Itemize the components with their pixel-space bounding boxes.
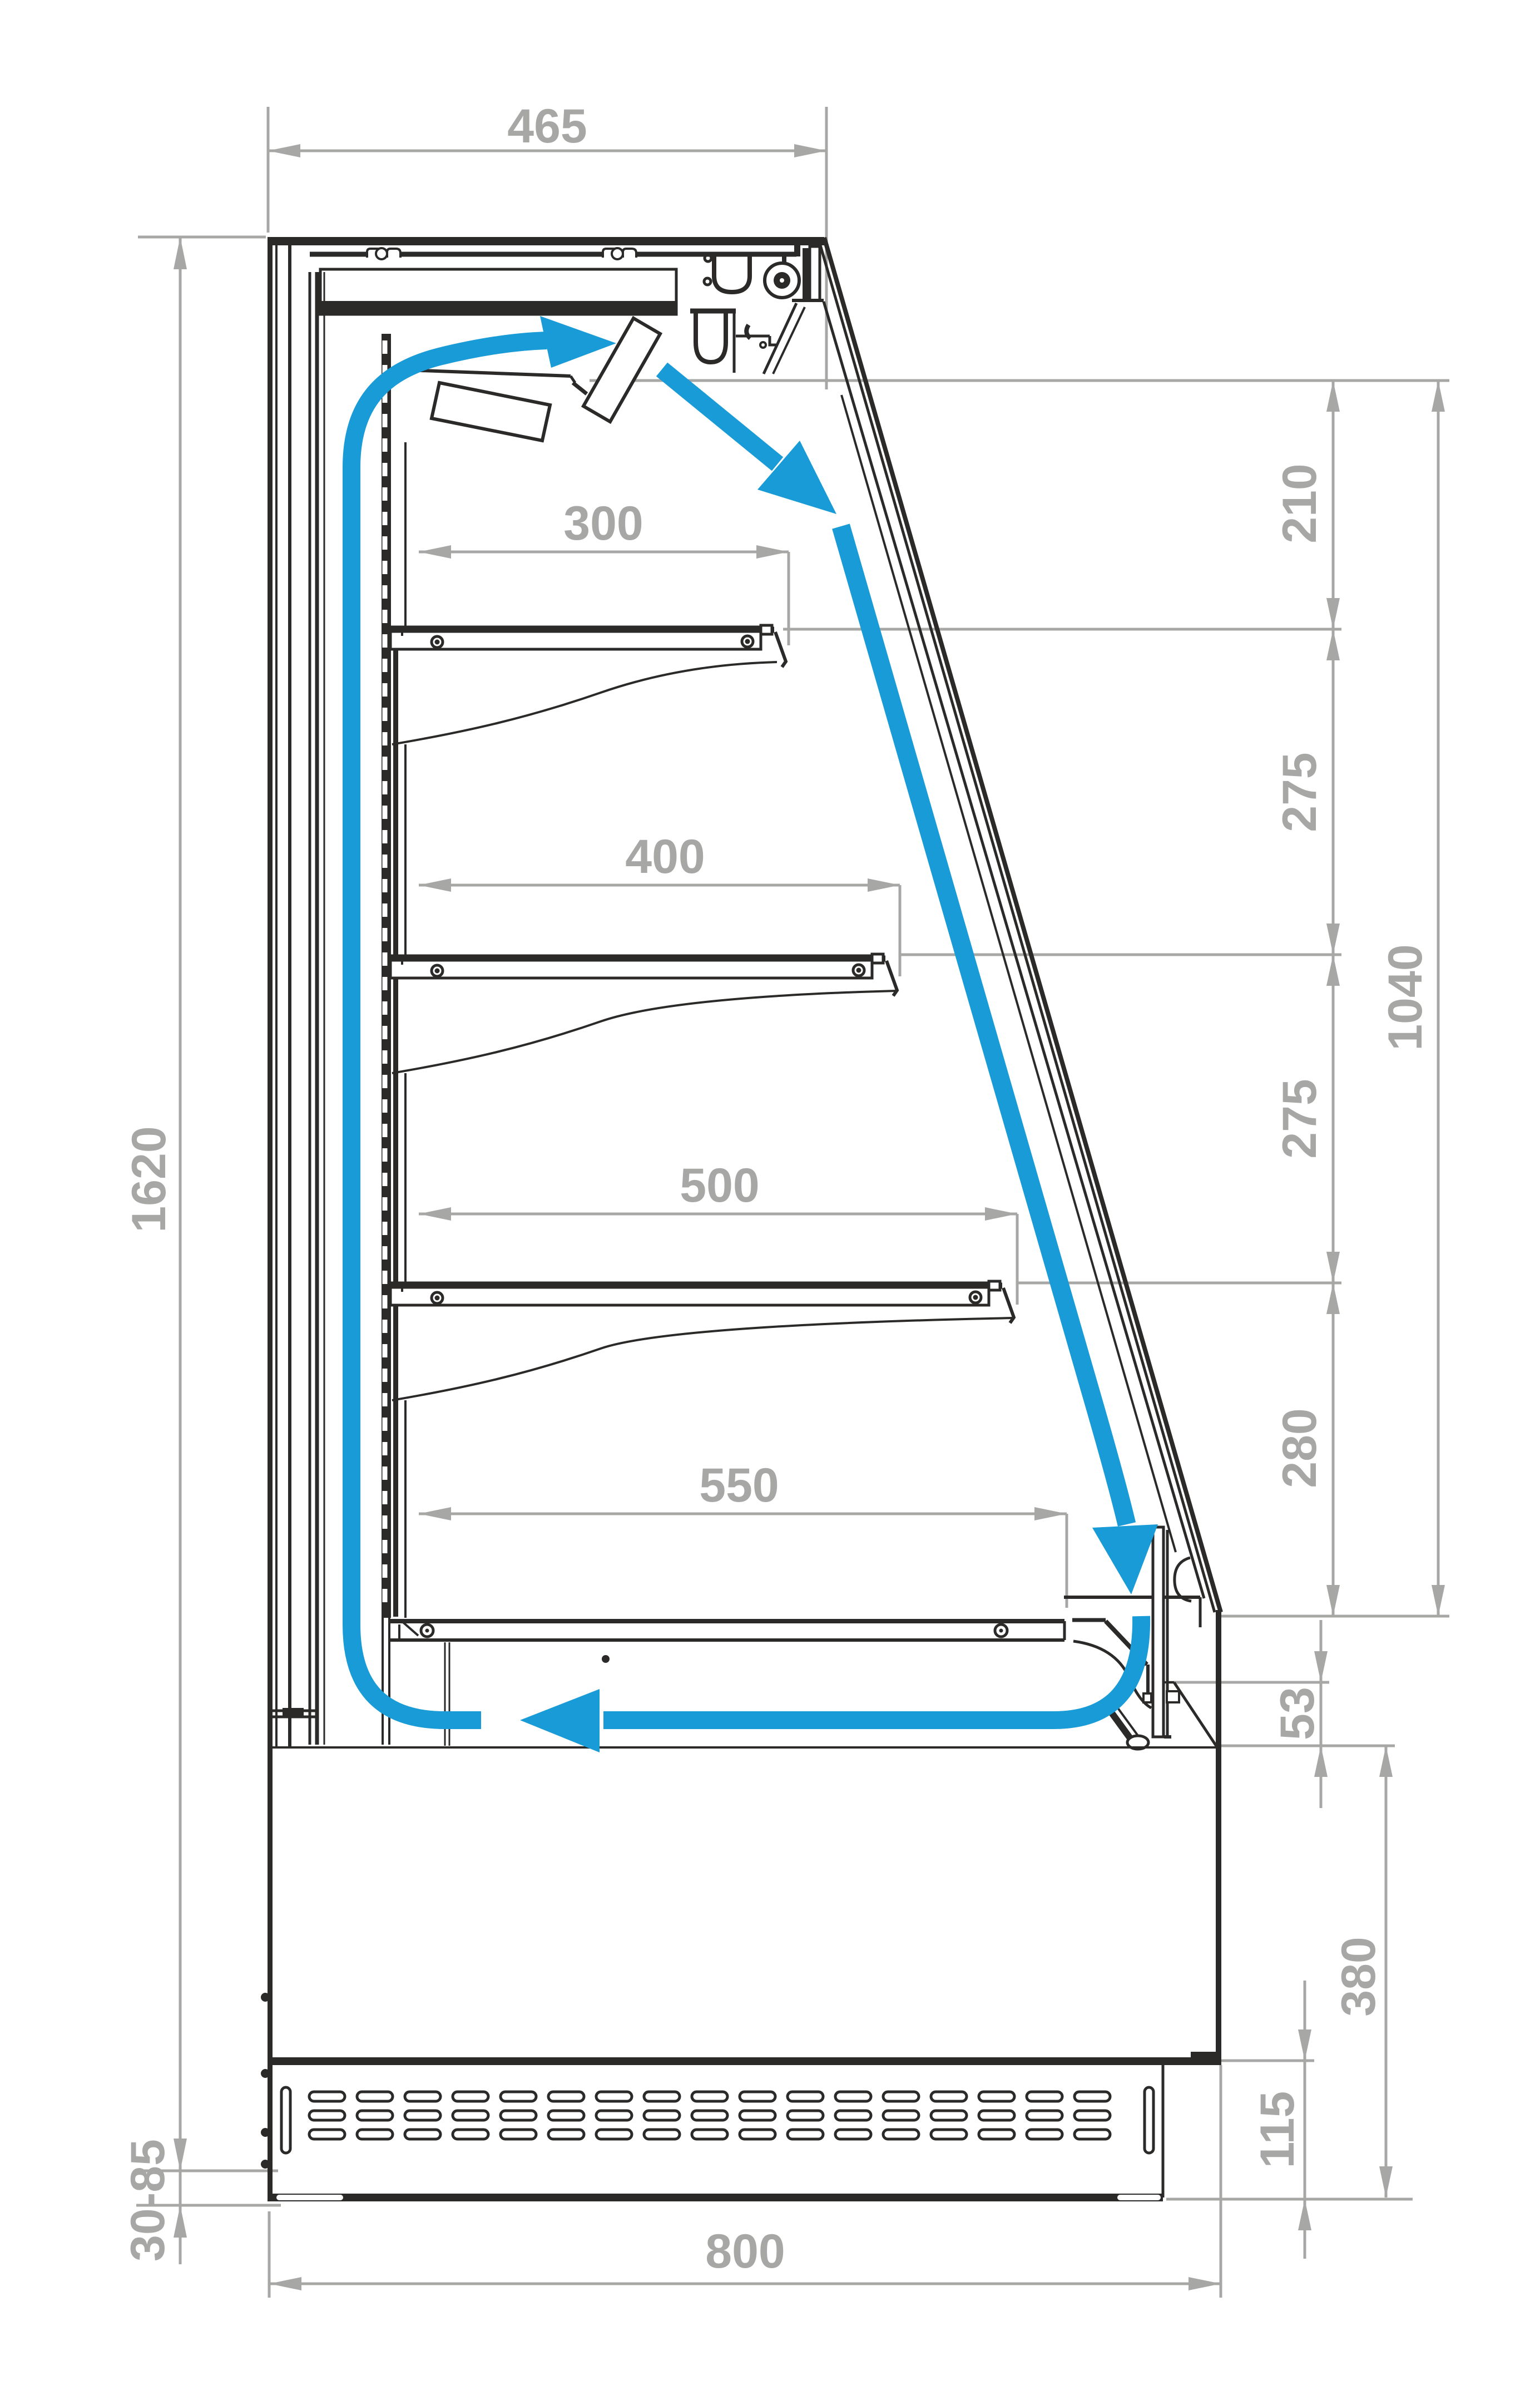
svg-text:30-85: 30-85 [121,2139,175,2261]
svg-text:300: 300 [563,497,643,550]
svg-text:400: 400 [625,830,705,883]
svg-text:380: 380 [1332,1937,1385,2017]
svg-text:115: 115 [1251,2091,1304,2169]
svg-text:1620: 1620 [122,1126,176,1232]
svg-text:1040: 1040 [1379,944,1432,1050]
svg-text:550: 550 [699,1459,779,1512]
svg-text:275: 275 [1273,1079,1326,1159]
svg-text:280: 280 [1273,1408,1326,1488]
svg-text:500: 500 [680,1159,760,1212]
svg-text:465: 465 [507,100,587,153]
svg-text:800: 800 [705,2225,785,2278]
svg-text:210: 210 [1273,463,1326,544]
svg-text:53: 53 [1271,1687,1324,1740]
svg-text:275: 275 [1273,752,1326,832]
